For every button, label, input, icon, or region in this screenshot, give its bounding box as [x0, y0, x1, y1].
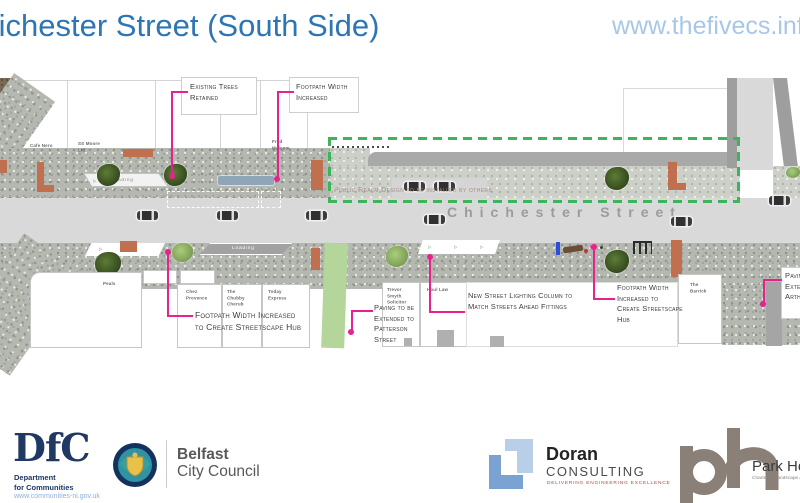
label-ss-moore: SS Moore Ltd: [78, 141, 100, 154]
kerb-element: [311, 160, 323, 190]
leader-dot: [274, 176, 280, 182]
leader-dot: [169, 173, 175, 179]
building-outline: [623, 88, 731, 155]
lighting-column-icon: [556, 242, 560, 255]
label-chez-provence: Chez Provence: [186, 289, 207, 302]
bike-rack-icon: [633, 241, 652, 254]
doran-type: CONSULTING: [546, 464, 645, 480]
doran-logo-icon: [487, 437, 535, 491]
loading-bay-marking: [261, 191, 281, 208]
public-realm-boundary: [328, 200, 740, 203]
annotation-footpath-width: Footpath Width Increased: [296, 82, 348, 103]
public-realm-boundary: [328, 137, 740, 140]
cycle-bay: ▹ ▹ ▹: [418, 240, 500, 254]
dfc-logo: DfC: [13, 425, 90, 470]
boundary-dotted-line: [332, 146, 390, 148]
leader-line: [593, 298, 615, 300]
leader-line: [277, 91, 279, 178]
leader-line: [429, 257, 431, 313]
cross-street-kerb: [727, 78, 737, 168]
car-icon: [671, 217, 692, 226]
side-street: [766, 282, 782, 346]
building-outline: [180, 270, 215, 284]
kerb-element: [311, 248, 320, 270]
parcel-divider: [155, 80, 156, 148]
kerb-element: [0, 160, 7, 173]
leader-dot: [760, 301, 766, 307]
car-icon: [306, 211, 327, 220]
annotation-streetscape-hub-left: Footpath Width Increased to Create Stree…: [195, 310, 301, 334]
building-frontage-line: [0, 80, 332, 81]
label-the-barrick: The Barrick: [690, 282, 707, 295]
kerb-element: [37, 185, 54, 192]
car-icon: [137, 211, 158, 220]
leader-line: [429, 311, 465, 313]
dfc-department-name: Department for Communities: [14, 473, 74, 493]
green-link-path: [321, 243, 348, 349]
building-peals: [30, 272, 142, 348]
building-outline: [143, 270, 177, 284]
public-realm-note: Public Realm Design to be installed by o…: [334, 187, 492, 194]
parcel-divider: [67, 80, 68, 148]
cycle-symbol: ▹: [428, 243, 432, 251]
car-icon: [424, 215, 445, 224]
park-hood-name: Park Hood: [752, 458, 800, 475]
leader-line: [167, 252, 169, 317]
cycle-symbol: ▹: [99, 245, 103, 253]
loading-bay-bottom: Loading: [200, 243, 292, 255]
leader-line: [593, 247, 595, 300]
belfast-crest-icon: [112, 442, 158, 488]
kerb-element: [120, 241, 137, 252]
bay-arrow-symbol: ▹: [93, 177, 97, 185]
public-realm-boundary: [328, 137, 331, 203]
dfc-website[interactable]: www.communities-ni.gov.uk: [14, 493, 100, 500]
label-today-express: Today Express: [268, 289, 287, 302]
park-hood-subtitle: Chartered Landscape Architects: [752, 476, 800, 481]
cross-street: [737, 78, 773, 170]
loading-bay-marking: [167, 191, 259, 208]
label-peals: Peals: [103, 281, 116, 288]
leader-line: [171, 91, 173, 176]
structure-icon: [437, 330, 454, 347]
leader-line: [277, 91, 294, 93]
label-cafe-nero: Cafe Nero: [30, 143, 53, 150]
slide: { "colors": { "title-blue": "#2e75b6", "…: [0, 0, 800, 500]
loading-label-bottom: Loading: [232, 246, 255, 251]
parcel-divider: [260, 80, 261, 148]
annotation-paving-arthur: Paving Extend Arthur: [785, 271, 800, 303]
leader-line: [351, 310, 353, 331]
doran-name: Doran: [546, 445, 598, 463]
logo-divider: [166, 440, 167, 488]
kerb-element: [671, 240, 682, 277]
kerb-element: [123, 149, 153, 157]
annotation-existing-trees: Existing Trees Retained: [190, 82, 238, 103]
annotation-new-lighting: New Street Lighting Column to Match Stre…: [468, 291, 572, 312]
kerb-element: [668, 183, 686, 190]
planting-icon: [584, 249, 588, 253]
label-chubby-cherub: The Chubby Cherub: [227, 289, 245, 309]
leader-line: [763, 279, 782, 281]
bench-icon: [218, 176, 274, 185]
planting-icon: [600, 246, 603, 249]
cross-street-kerb: [773, 78, 798, 168]
annotation-paving-patterson: Paving to be Extended to Patterson Stree…: [374, 303, 414, 345]
label-fred-malcom: Fred Malcom: [272, 139, 290, 152]
public-realm-boundary: [737, 137, 740, 203]
leader-line: [171, 91, 188, 93]
cycle-symbol: ▹: [480, 243, 484, 251]
belfast-city-council-name2: City Council: [177, 463, 260, 480]
street-name-label: Chichester Street: [447, 204, 682, 220]
car-icon: [769, 196, 790, 205]
annotation-streetscape-hub-right: Footpath Width Increased to Create Stree…: [617, 283, 683, 325]
leader-dot: [348, 329, 354, 335]
cycle-symbol: ▹: [454, 243, 458, 251]
belfast-city-council-name: Belfast: [177, 446, 229, 463]
building-edge-band: [368, 152, 737, 167]
structure-icon: [490, 336, 504, 347]
logo-strip: DfC Department for Communities www.commu…: [0, 420, 800, 500]
car-icon: [217, 211, 238, 220]
leader-line: [167, 315, 193, 317]
doran-tagline: DELIVERING ENGINEERING EXCELLENCE: [547, 481, 671, 486]
leader-line: [351, 310, 373, 312]
